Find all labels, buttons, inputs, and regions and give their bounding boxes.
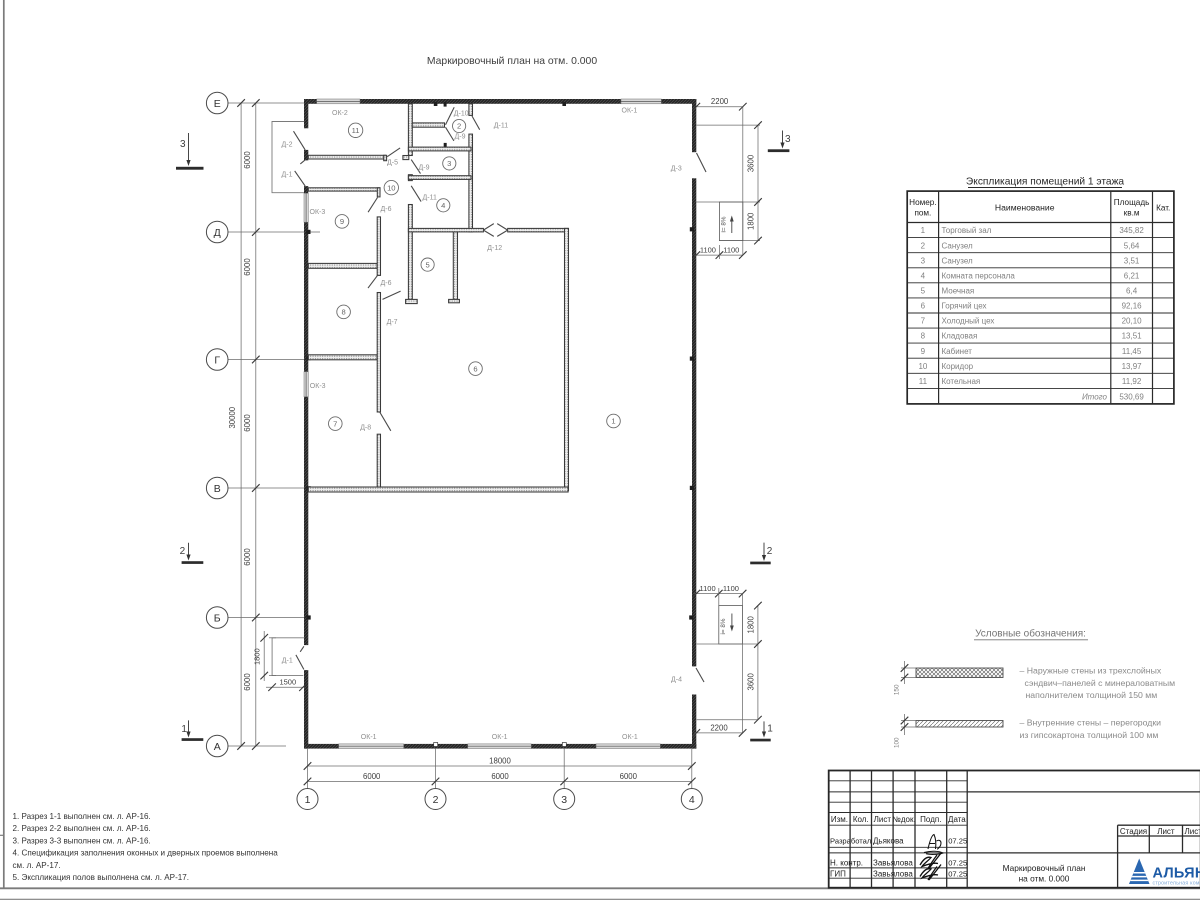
svg-text:11: 11 xyxy=(919,377,928,386)
svg-text:Д-3: Д-3 xyxy=(671,166,682,173)
svg-text:Подп.: Подп. xyxy=(920,815,941,824)
svg-text:2200: 2200 xyxy=(710,723,728,732)
svg-text:ОК-1: ОК-1 xyxy=(622,108,638,115)
svg-text:Д-11: Д-11 xyxy=(494,123,508,130)
svg-text:Д-5: Д-5 xyxy=(387,159,398,166)
svg-text:см. л. АР-17.: см. л. АР-17. xyxy=(13,861,61,870)
svg-text:Комната персонала: Комната персонала xyxy=(942,271,1016,280)
svg-text:Е: Е xyxy=(214,98,221,110)
svg-text:1100: 1100 xyxy=(723,245,739,254)
svg-text:10: 10 xyxy=(387,183,395,192)
svg-text:6,4: 6,4 xyxy=(1126,287,1138,296)
svg-text:8: 8 xyxy=(921,332,926,341)
svg-text:– Внутренние стены – перегород: – Внутренние стены – перегородки xyxy=(1020,718,1162,728)
svg-text:3: 3 xyxy=(180,139,186,150)
svg-text:7: 7 xyxy=(921,317,926,326)
svg-text:Стадия: Стадия xyxy=(1120,827,1147,836)
svg-text:Маркировочный план: Маркировочный план xyxy=(1003,863,1086,873)
svg-text:Кат.: Кат. xyxy=(1156,204,1170,213)
svg-text:Экспликация помещений 1 этажа: Экспликация помещений 1 этажа xyxy=(966,177,1124,188)
svg-text:2: 2 xyxy=(180,546,186,557)
svg-text:Лист: Лист xyxy=(1157,827,1175,836)
svg-text:Кол.: Кол. xyxy=(853,815,869,824)
svg-text:Итого: Итого xyxy=(1082,393,1108,402)
svg-text:2: 2 xyxy=(921,241,926,250)
svg-text:Дата: Дата xyxy=(948,815,966,824)
svg-text:2200: 2200 xyxy=(711,97,729,106)
svg-text:i= 8%: i= 8% xyxy=(720,618,727,634)
svg-text:Санузел: Санузел xyxy=(942,241,973,250)
svg-text:1: 1 xyxy=(611,417,615,426)
svg-text:Д-8: Д-8 xyxy=(360,425,371,432)
svg-text:6000: 6000 xyxy=(243,548,252,566)
svg-text:Моечная: Моечная xyxy=(942,287,975,296)
svg-text:1: 1 xyxy=(767,724,773,735)
svg-text:3600: 3600 xyxy=(746,154,755,172)
svg-text:Наименование: Наименование xyxy=(995,203,1055,213)
svg-text:Лист: Лист xyxy=(874,815,892,824)
svg-text:6: 6 xyxy=(473,364,477,373)
svg-text:2: 2 xyxy=(457,122,461,131)
svg-text:Торговый зал: Торговый зал xyxy=(942,226,992,235)
svg-text:11,45: 11,45 xyxy=(1122,347,1142,356)
svg-text:150: 150 xyxy=(894,684,901,695)
svg-text:3600: 3600 xyxy=(746,672,755,690)
svg-text:07.25: 07.25 xyxy=(948,870,967,879)
svg-text:1: 1 xyxy=(181,724,187,735)
svg-text:ОК-2: ОК-2 xyxy=(332,110,348,117)
svg-text:Д-2: Д-2 xyxy=(282,142,293,149)
svg-text:Д-10: Д-10 xyxy=(454,111,469,118)
svg-text:Н. контр.: Н. контр. xyxy=(830,859,863,868)
svg-text:Д-6: Д-6 xyxy=(381,280,392,287)
svg-text:5,64: 5,64 xyxy=(1124,241,1140,250)
svg-text:3: 3 xyxy=(561,794,567,806)
svg-text:92,16: 92,16 xyxy=(1122,302,1143,311)
svg-text:6000: 6000 xyxy=(363,772,381,781)
svg-text:9: 9 xyxy=(921,347,926,356)
svg-text:Д-9: Д-9 xyxy=(455,134,466,141)
svg-text:Д-6: Д-6 xyxy=(381,206,392,213)
svg-text:9: 9 xyxy=(340,217,344,226)
svg-text:Условные обозначения:: Условные обозначения: xyxy=(975,628,1086,640)
svg-text:из гипсокартона толщиной 100 м: из гипсокартона толщиной 100 мм xyxy=(1020,730,1159,740)
svg-text:13,51: 13,51 xyxy=(1122,332,1143,341)
svg-text:4: 4 xyxy=(689,794,695,806)
svg-text:10: 10 xyxy=(918,362,927,371)
svg-text:Кабинет: Кабинет xyxy=(942,347,973,356)
svg-text:Завьялова: Завьялова xyxy=(873,870,913,879)
svg-text:Г: Г xyxy=(214,354,220,366)
svg-text:2. Разрез 2-2 выполнен см. л.: 2. Разрез 2-2 выполнен см. л. АР-16. xyxy=(13,824,151,833)
svg-text:6000: 6000 xyxy=(243,151,252,169)
svg-text:30000: 30000 xyxy=(228,406,237,428)
svg-text:строительная компания: строительная компания xyxy=(1153,881,1200,887)
svg-text:07.25: 07.25 xyxy=(948,837,967,846)
svg-text:i= 8%: i= 8% xyxy=(721,216,728,232)
svg-text:6000: 6000 xyxy=(491,772,509,781)
svg-text:1800: 1800 xyxy=(252,648,261,665)
svg-text:4: 4 xyxy=(921,271,926,280)
svg-text:Холодный цех: Холодный цех xyxy=(942,317,995,326)
svg-text:1100: 1100 xyxy=(700,584,716,593)
svg-text:ОК-3: ОК-3 xyxy=(310,209,326,216)
svg-text:Площадь: Площадь xyxy=(1114,198,1150,207)
svg-text:на отм. 0.000: на отм. 0.000 xyxy=(1019,874,1070,884)
svg-text:Разработал: Разработал xyxy=(830,837,871,846)
svg-text:наполнителем толщиной 150 мм: наполнителем толщиной 150 мм xyxy=(1026,690,1158,700)
svg-text:АЛЬЯНС: АЛЬЯНС xyxy=(1153,866,1200,882)
svg-text:1100: 1100 xyxy=(700,245,716,254)
svg-text:6: 6 xyxy=(921,302,926,311)
svg-text:ОК-1: ОК-1 xyxy=(361,734,377,741)
svg-text:1800: 1800 xyxy=(746,212,755,230)
svg-text:3: 3 xyxy=(785,134,791,145)
svg-text:ГИП: ГИП xyxy=(830,870,846,879)
svg-text:5: 5 xyxy=(921,287,926,296)
svg-text:4: 4 xyxy=(441,201,445,210)
svg-text:Д-1: Д-1 xyxy=(282,171,293,178)
svg-text:5: 5 xyxy=(425,260,429,269)
svg-text:7: 7 xyxy=(333,419,337,428)
svg-text:13,97: 13,97 xyxy=(1122,362,1143,371)
svg-text:2: 2 xyxy=(433,794,439,806)
svg-text:Д: Д xyxy=(214,227,221,239)
svg-text:1800: 1800 xyxy=(746,615,755,633)
svg-text:Листов: Листов xyxy=(1185,827,1200,836)
svg-text:ОК-1: ОК-1 xyxy=(492,734,508,741)
svg-text:3. Разрез 3-3 выполнен см. л.: 3. Разрез 3-3 выполнен см. л. АР-16. xyxy=(13,836,151,845)
svg-text:6000: 6000 xyxy=(243,673,252,691)
svg-text:8: 8 xyxy=(341,308,345,317)
svg-text:3: 3 xyxy=(921,256,926,265)
svg-text:530,69: 530,69 xyxy=(1119,393,1144,402)
svg-text:Котельная: Котельная xyxy=(942,377,981,386)
svg-text:ОК-1: ОК-1 xyxy=(622,734,638,741)
svg-text:Коридор: Коридор xyxy=(942,362,974,371)
svg-text:345,82: 345,82 xyxy=(1119,226,1144,235)
svg-text:07.25: 07.25 xyxy=(948,859,967,868)
svg-text:А: А xyxy=(214,741,221,753)
svg-text:Завьялова: Завьялова xyxy=(873,859,913,868)
svg-text:Д-12: Д-12 xyxy=(487,245,502,252)
svg-text:11: 11 xyxy=(352,126,360,135)
svg-text:Номер.: Номер. xyxy=(909,198,936,207)
svg-text:Д-4: Д-4 xyxy=(671,676,682,683)
svg-text:В: В xyxy=(214,483,221,495)
svg-text:1. Разрез 1-1 выполнен см. л.: 1. Разрез 1-1 выполнен см. л. АР-16. xyxy=(13,812,151,821)
svg-text:кв.м: кв.м xyxy=(1124,209,1140,218)
svg-text:1: 1 xyxy=(921,226,926,235)
svg-text:6,21: 6,21 xyxy=(1124,271,1140,280)
svg-text:сэндвич–панелей с минераловатн: сэндвич–панелей с минераловатным xyxy=(1025,678,1176,688)
svg-text:2: 2 xyxy=(767,546,773,557)
svg-text:Маркировочный план на отм. 0.0: Маркировочный план на отм. 0.000 xyxy=(427,56,597,67)
svg-text:№док.: №док. xyxy=(892,815,915,824)
svg-text:5. Экспликация полов выполнена: 5. Экспликация полов выполнена см. л. АР… xyxy=(13,873,190,882)
svg-text:Б: Б xyxy=(214,612,221,624)
svg-text:20,10: 20,10 xyxy=(1122,317,1143,326)
svg-text:3,51: 3,51 xyxy=(1124,256,1140,265)
svg-text:11,92: 11,92 xyxy=(1122,377,1142,386)
svg-text:4. Спецификация заполнения око: 4. Спецификация заполнения оконных и две… xyxy=(13,849,279,858)
svg-text:Дьякова: Дьякова xyxy=(873,837,904,846)
svg-text:Санузел: Санузел xyxy=(942,256,973,265)
svg-text:1: 1 xyxy=(305,794,311,806)
svg-text:Горячий цех: Горячий цех xyxy=(942,302,987,311)
svg-text:Д-1: Д-1 xyxy=(282,657,293,664)
svg-text:18000: 18000 xyxy=(489,757,511,766)
svg-text:3: 3 xyxy=(447,159,451,168)
svg-text:100: 100 xyxy=(894,737,901,748)
svg-text:Кладовая: Кладовая xyxy=(942,332,978,341)
svg-text:6000: 6000 xyxy=(620,772,638,781)
svg-text:6000: 6000 xyxy=(243,258,252,276)
svg-text:Д-9: Д-9 xyxy=(419,164,430,171)
svg-text:Изм.: Изм. xyxy=(831,815,848,824)
svg-text:6000: 6000 xyxy=(243,414,252,432)
svg-text:Д-7: Д-7 xyxy=(387,319,398,326)
svg-text:– Наружные стены из трехслойны: – Наружные стены из трехслойных xyxy=(1020,666,1162,676)
svg-text:пом.: пом. xyxy=(914,209,931,218)
svg-text:1100: 1100 xyxy=(723,584,739,593)
svg-text:ОК-3: ОК-3 xyxy=(310,383,326,390)
svg-text:1500: 1500 xyxy=(279,678,296,687)
svg-text:Д-11: Д-11 xyxy=(423,194,437,201)
